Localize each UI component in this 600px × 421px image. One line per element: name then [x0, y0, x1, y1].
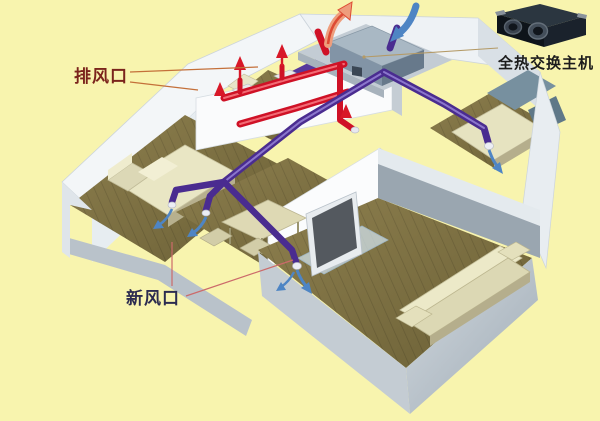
label-fresh-air-vent: 新风口: [126, 284, 180, 309]
label-heat-exchanger-unit: 全热交换主机: [498, 52, 594, 73]
ventilation-diagram: 排风口 新风口 全热交换主机: [0, 0, 600, 421]
heat-exchanger-product-photo: [495, 4, 587, 47]
label-exhaust-vent: 排风口: [74, 62, 128, 87]
